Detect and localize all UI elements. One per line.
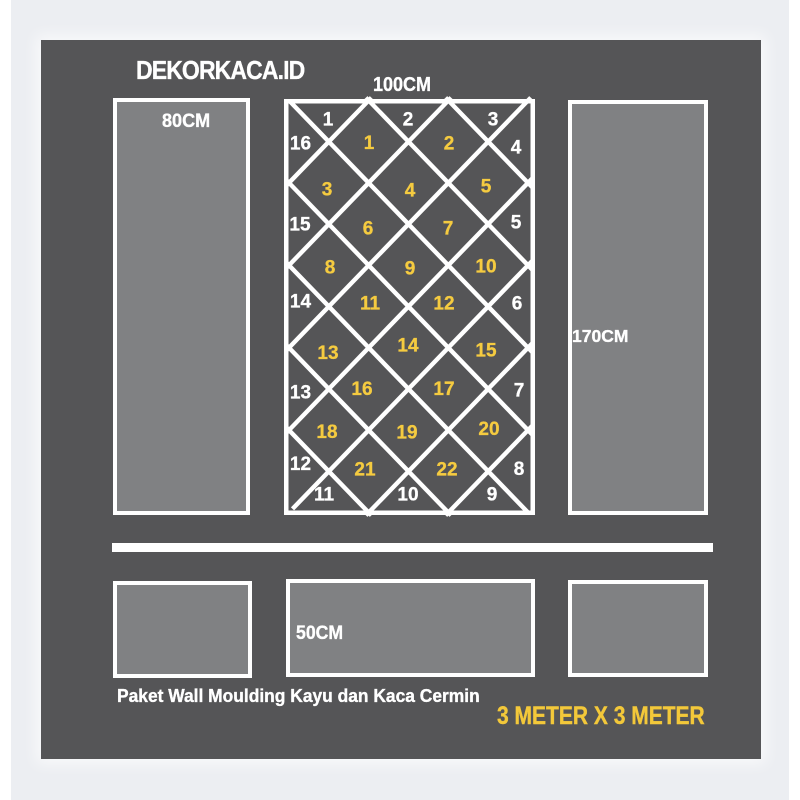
svg-text:12: 12 <box>433 294 454 315</box>
svg-text:19: 19 <box>396 423 417 444</box>
svg-text:13: 13 <box>290 383 311 404</box>
svg-text:9: 9 <box>487 485 498 506</box>
svg-text:18: 18 <box>316 422 337 443</box>
svg-text:11: 11 <box>360 294 381 315</box>
svg-text:4: 4 <box>405 181 416 202</box>
svg-text:9: 9 <box>405 259 416 280</box>
svg-text:8: 8 <box>325 258 336 279</box>
svg-text:8: 8 <box>514 459 525 480</box>
svg-text:14: 14 <box>290 292 312 313</box>
svg-text:17: 17 <box>433 379 454 400</box>
svg-text:15: 15 <box>289 215 311 236</box>
svg-text:16: 16 <box>351 379 372 400</box>
svg-text:10: 10 <box>475 257 496 278</box>
svg-text:16: 16 <box>290 134 311 155</box>
svg-text:2: 2 <box>444 134 455 155</box>
svg-text:11: 11 <box>314 485 335 506</box>
svg-text:10: 10 <box>397 485 418 506</box>
svg-text:1: 1 <box>364 133 375 154</box>
svg-text:7: 7 <box>514 381 525 402</box>
svg-text:6: 6 <box>363 219 374 240</box>
svg-text:2: 2 <box>403 110 414 131</box>
svg-text:6: 6 <box>512 294 523 315</box>
svg-text:22: 22 <box>436 460 457 481</box>
svg-text:7: 7 <box>443 219 454 240</box>
svg-text:5: 5 <box>481 177 492 198</box>
svg-text:20: 20 <box>478 419 499 440</box>
svg-text:5: 5 <box>511 213 522 234</box>
svg-text:21: 21 <box>354 460 376 481</box>
svg-text:15: 15 <box>475 341 497 362</box>
svg-text:13: 13 <box>317 343 338 364</box>
svg-text:3: 3 <box>322 180 333 201</box>
svg-text:3: 3 <box>488 110 499 131</box>
svg-text:4: 4 <box>511 138 522 159</box>
svg-text:1: 1 <box>323 110 334 131</box>
svg-text:14: 14 <box>397 336 419 357</box>
svg-text:12: 12 <box>290 454 311 475</box>
